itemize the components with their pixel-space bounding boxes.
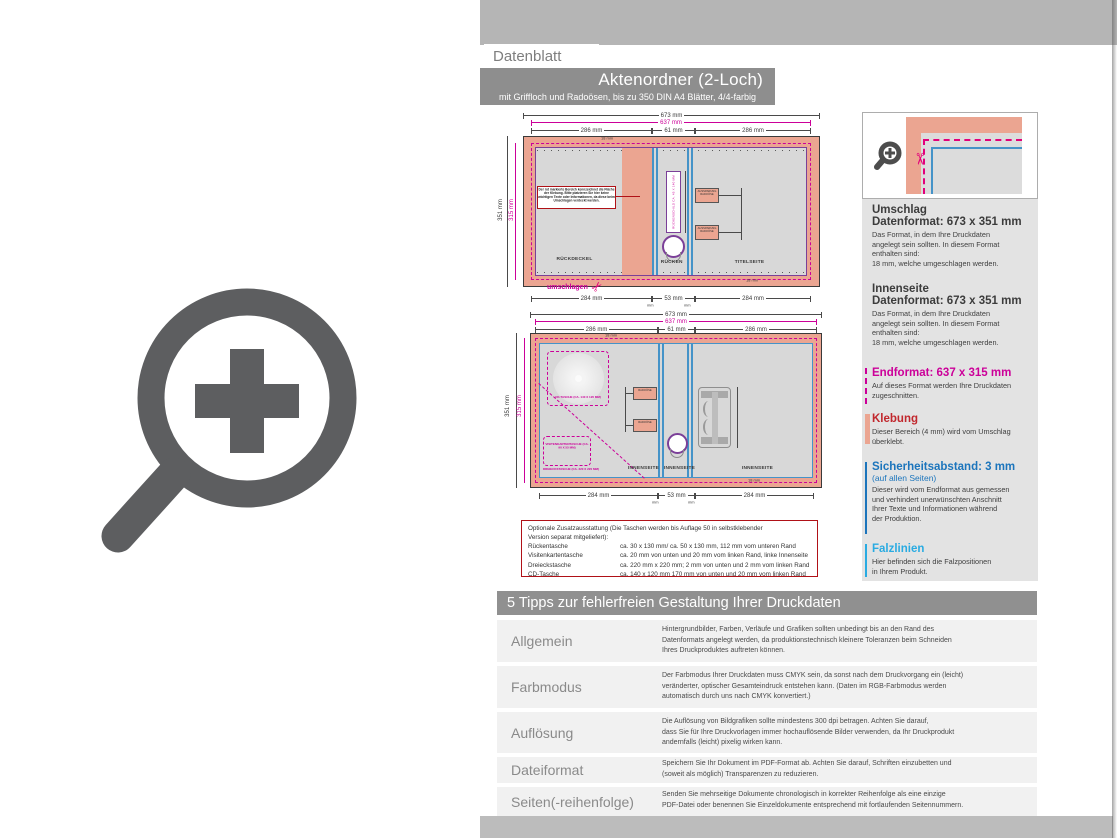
tip-text: Senden Sie mehrseitige Dokumente chronol…: [662, 790, 1027, 811]
d1-glue-dots-top: [537, 150, 805, 151]
d1-eyelet-cutout-label: AUSSPARUNG RADOÖSE: [696, 190, 718, 196]
d1-eyelet-cutout: AUSSPARUNG RADOÖSE: [695, 188, 719, 203]
section-endformat: Endformat: 637 x 315 mm Auf dieses Forma…: [872, 367, 1032, 400]
d2-dim-panel-left: 286 mm: [535, 326, 658, 333]
datenblatt-label: Datenblatt: [493, 48, 561, 65]
d2-eyelet: RADOÖSE: [633, 387, 657, 400]
d2-label-inner-spine: INNENSEITE: [664, 466, 695, 471]
umschlag-format: Datenformat: 673 x 351 mm: [872, 216, 1032, 228]
page-edge-shadow: [1112, 0, 1117, 838]
tip-text: Speichern Sie Ihr Dokument im PDF-Format…: [662, 759, 1027, 780]
d2-mechanism: [698, 387, 731, 448]
d2-dim-spine: 61 mm: [658, 326, 695, 333]
d1-annotation-note: Der rot markierte Bereich kennzeichnet d…: [537, 186, 616, 209]
d1-annotation-leader: [616, 196, 640, 197]
d1-dim-height-end: 315 mm: [509, 190, 515, 230]
tip-row-allgemein: Allgemein Hintergrundbilder, Farben, Ver…: [497, 620, 1037, 662]
innenseite-body: Das Format, in dem Ihre Druckdaten angel…: [872, 309, 1032, 348]
d1-dim-bottom-right: 284 mm: [695, 295, 811, 302]
sicherheitsabstand-body: Dieser wird vom Endformat aus gemessen u…: [872, 485, 1032, 524]
endformat-accent-bar: [865, 368, 867, 404]
d1-dim-height-total-line: [507, 136, 508, 287]
section-falzlinien: Falzlinien Hier befinden sich die Falzpo…: [872, 543, 1032, 576]
mechanism-lever: [712, 392, 718, 444]
optional-row-name: CD-Tasche: [528, 570, 620, 579]
corner-detail-inset: ✂: [862, 112, 1038, 199]
d2-eyelet: RADOÖSE: [633, 419, 657, 432]
optional-row-desc: ca. 30 x 130 mm/ ca. 50 x 130 mm, 112 mm…: [620, 542, 811, 551]
umschlag-body: Das Format, in dem Ihre Druckdaten angel…: [872, 230, 1032, 269]
d2-eyelet-dim-tick: [625, 425, 633, 426]
tip-row-aufloesung: Auflösung Die Auflösung von Bildgrafiken…: [497, 712, 1037, 753]
d2-dim-fold-top: 18 mm: [605, 334, 617, 338]
section-klebung: Klebung Dieser Bereich (4 mm) wird vom U…: [872, 413, 1032, 446]
optional-row-name: Rückentasche: [528, 542, 620, 551]
d1-dim-height-end-line: [515, 143, 516, 280]
d1-fold-line: [687, 148, 689, 275]
tip-label: Allgemein: [511, 633, 572, 649]
d2-dim-end-width: 637 mm: [535, 318, 817, 325]
optional-accessories-box: Optionale Zusatzausstattung (Die Taschen…: [521, 520, 818, 577]
bottom-band: [480, 816, 1113, 838]
zoom-in-icon[interactable]: [90, 270, 410, 600]
tip-row-seitenreihenfolge: Seiten(-reihenfolge) Senden Sie mehrseit…: [497, 787, 1037, 816]
d1-dim-end-width: 637 mm: [531, 119, 811, 126]
inset-safety-line: [931, 147, 1022, 194]
d1-label-back-cover: RÜCKDECKEL: [557, 257, 593, 262]
d1-eyelet-dim: [741, 188, 742, 240]
d2-eyelet-label: RADOÖSE: [634, 421, 656, 424]
tip-label: Dateiformat: [511, 762, 583, 778]
d1-dim-panel-right: 286 mm: [695, 127, 811, 134]
cd-disc-hole: [575, 375, 582, 382]
d2-fold-line: [687, 344, 689, 477]
section-umschlag: Umschlag Datenformat: 673 x 351 mm Das F…: [872, 204, 1032, 269]
d1-dim-fold-bottom: 18 mm: [746, 279, 758, 283]
datenblatt-tab: Datenblatt: [484, 44, 599, 68]
tip-label: Auflösung: [511, 725, 573, 741]
d2-dim-bottom-right: 284 mm: [695, 492, 814, 499]
optional-row-desc: ca. 220 mm x 220 mm; 2 mm von unten und …: [620, 561, 811, 570]
d2-fold-line: [658, 344, 660, 477]
d1-dim-bottom-left: 284 mm: [531, 295, 652, 302]
klebung-body: Dieser Bereich (4 mm) wird vom Umschlag …: [872, 427, 1032, 446]
d1-annotation-text: Der rot markierte Bereich kennzeichnet d…: [538, 188, 615, 203]
d2-triangle-pocket-label: DREIECKSTASCHE (CA. 220 X 220 MM): [543, 468, 603, 472]
d2-fold-line: [662, 344, 664, 477]
tip-label: Farbmodus: [511, 679, 582, 695]
falzlinien-accent-bar: [865, 544, 867, 577]
tip-label: Seiten(-reihenfolge): [511, 794, 634, 810]
mechanism-ring: [703, 401, 714, 417]
page-title: Aktenordner (2-Loch): [598, 70, 763, 90]
d2-dim-bottom-spine: 53 mm: [658, 492, 695, 499]
d1-glue-dots-bottom: [537, 272, 805, 273]
endformat-heading: Endformat: 637 x 315 mm: [872, 367, 1032, 379]
page-subtitle: mit Griffloch und Radoösen, bis zu 350 D…: [480, 92, 775, 102]
d2-dim-height-end: 315 mm: [517, 386, 523, 426]
d2-card-pocket: VISITENKARTENTASCHE (CA. 90 X 55 MM): [543, 436, 591, 466]
d1-eyelet-cutout: AUSSPARUNG RADOÖSE: [695, 225, 719, 240]
d1-spine-label-dim: [685, 171, 686, 233]
d2-mechanism-dim: [737, 387, 738, 448]
d2-dim-bottom-left: 284 mm: [539, 492, 658, 499]
d1-eyelet-dim-tick: [719, 195, 741, 196]
tips-header: 5 Tipps zur fehlerfreien Gestaltung Ihre…: [497, 591, 1037, 615]
datasheet-screenshot: Datenblatt Aktenordner (2-Loch) mit Grif…: [0, 0, 1117, 838]
d2-dim-total-width: 673 mm: [530, 311, 822, 318]
d2-label-inner-right: INNENSEITE: [742, 466, 773, 471]
d1-eyelet-cutout-label: AUSSPARUNG RADOÖSE: [696, 227, 718, 233]
d2-dim-panel-right: 286 mm: [695, 326, 817, 333]
d1-dim-spine: 61 mm: [652, 127, 695, 134]
endformat-body: Auf dieses Format werden Ihre Druckdaten…: [872, 381, 1032, 400]
inset-scissors-icon: ✂: [910, 152, 930, 165]
innenseite-format: Datenformat: 673 x 351 mm: [872, 295, 1032, 307]
d1-dim-height-total: 351 mm: [498, 190, 504, 230]
d1-spine-label-box: RÜCKENSCHILD CA. 45 X 140 MM: [666, 171, 681, 233]
falzlinien-heading: Falzlinien: [872, 543, 1032, 555]
d1-eyelet-dim-tick: [719, 232, 741, 233]
d1-label-front: TITELSEITE: [735, 260, 765, 265]
klebung-accent-bar: [865, 414, 870, 444]
d1-dim-panel-left: 286 mm: [531, 127, 652, 134]
tip-text: Hintergrundbilder, Farben, Verläufe und …: [662, 625, 1027, 657]
tip-text: Der Farbmodus Ihrer Druckdaten muss CMYK…: [662, 671, 1027, 703]
magnifier-icon: [873, 141, 903, 173]
umschlag-heading: Umschlag: [872, 204, 1032, 216]
d1-fold-line: [691, 148, 693, 275]
d1-dim-fold-top: 18 mm: [601, 137, 613, 141]
d1-fold-note: umschlagen: [547, 284, 588, 291]
d2-eyelet-label: RADOÖSE: [634, 389, 656, 392]
d1-dim-total-width: 673 mm: [523, 112, 820, 119]
d1-glue-strip: [622, 148, 652, 275]
d2-card-pocket-label: VISITENKARTENTASCHE (CA. 90 X 55 MM): [544, 443, 590, 450]
tip-text: Die Auflösung von Bildgrafiken sollte mi…: [662, 717, 1027, 749]
d1-spine-label-text: RÜCKENSCHILD CA. 45 X 140 MM: [672, 175, 675, 229]
klebung-heading: Klebung: [872, 413, 1032, 425]
d1-dim-bottom-spine: 53 mm: [652, 295, 695, 302]
mechanism-ring: [703, 419, 714, 435]
top-band: [480, 0, 1117, 45]
d2-dim-mm-left: mm: [652, 501, 659, 505]
section-sicherheitsabstand: Sicherheitsabstand: 3 mm (auf allen Seit…: [872, 461, 1032, 524]
d2-dim-fold-bottom: 18 mm: [748, 479, 760, 483]
tips-title: 5 Tipps zur fehlerfreien Gestaltung Ihre…: [507, 595, 841, 611]
optional-row-name: Dreieckstasche: [528, 561, 620, 570]
sicherheitsabstand-sub: (auf allen Seiten): [872, 473, 1032, 483]
sicherheitsabstand-accent-bar: [865, 462, 867, 534]
d2-fold-line: [691, 344, 693, 477]
section-innenseite: Innenseite Datenformat: 673 x 351 mm Das…: [872, 283, 1032, 348]
d2-eyelet-dim-tick: [625, 393, 633, 394]
optional-row-desc: ca. 140 x 120 mm 170 mm von unten und 20…: [620, 570, 811, 579]
optional-intro: Optionale Zusatzausstattung (Die Taschen…: [528, 524, 811, 542]
optional-row-desc: ca. 20 mm von unten und 20 mm vom linken…: [620, 551, 811, 560]
title-bar: Aktenordner (2-Loch) mit Griffloch und R…: [480, 68, 775, 105]
d1-dim-mm-left: mm: [647, 304, 654, 308]
d1-dim-mm-right: mm: [684, 304, 691, 308]
d2-dim-height-total: 351 mm: [505, 386, 511, 426]
d2-dim-height-end-line: [524, 338, 525, 483]
optional-row-name: Visitenkartentasche: [528, 551, 620, 560]
innenseite-heading: Innenseite: [872, 283, 1032, 295]
d1-label-spine: RÜCKEN: [661, 260, 683, 265]
falzlinien-body: Hier befinden sich die Falzpositionen in…: [872, 557, 1032, 576]
d1-fold-line: [652, 148, 654, 275]
tip-row-dateiformat: Dateiformat Speichern Sie Ihr Dokument i…: [497, 757, 1037, 783]
d2-dim-mm-right: mm: [688, 501, 695, 505]
sicherheitsabstand-heading: Sicherheitsabstand: 3 mm: [872, 461, 1032, 473]
tip-row-farbmodus: Farbmodus Der Farbmodus Ihrer Druckdaten…: [497, 666, 1037, 708]
d2-label-inner-left: INNENSEITE: [628, 466, 659, 471]
d1-fold-line: [656, 148, 658, 275]
